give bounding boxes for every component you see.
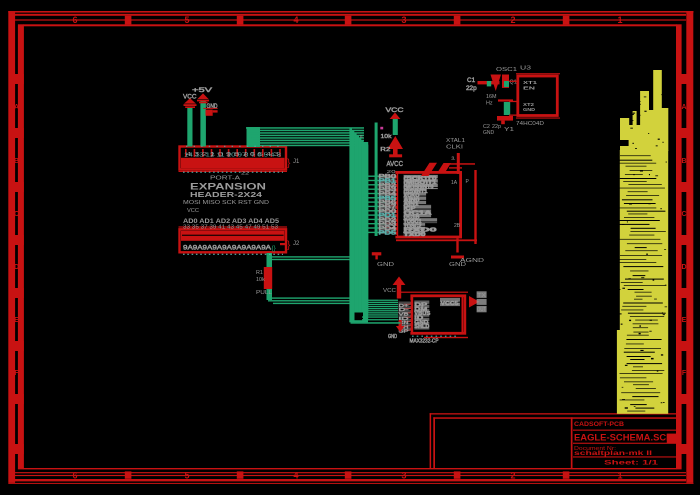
svg-text:33 35 37 39 41 43 45 47 49 51: 33 35 37 39 41 43 45 47 49 51 53	[183, 225, 278, 231]
svg-text:D: D	[14, 264, 19, 271]
svg-text:10k: 10k	[381, 134, 392, 140]
svg-text:6: 6	[72, 15, 77, 25]
svg-text:VCC: VCC	[383, 288, 396, 294]
svg-text:GND: GND	[523, 107, 536, 113]
svg-text:PULL: PULL	[256, 290, 273, 296]
svg-text:OSC1: OSC1	[496, 67, 517, 73]
svg-text:R2: R2	[380, 147, 390, 153]
svg-text:GND: GND	[483, 130, 495, 136]
svg-text:B: B	[681, 158, 686, 165]
svg-text:HEADER-2X24: HEADER-2X24	[190, 192, 262, 199]
svg-text:MOSI MISO SCK RST GND: MOSI MISO SCK RST GND	[183, 200, 269, 206]
svg-text:F: F	[14, 370, 19, 377]
svg-text:+5V: +5V	[192, 87, 213, 94]
svg-text:10k: 10k	[256, 277, 265, 283]
svg-text:74HC04D: 74HC04D	[516, 121, 544, 127]
svg-text:GND: GND	[388, 334, 397, 340]
svg-text:3: 3	[401, 15, 406, 25]
svg-text:A: A	[681, 104, 686, 111]
svg-text:EXPANSION: EXPANSION	[190, 182, 266, 193]
svg-text:22p: 22p	[466, 85, 477, 92]
svg-text:OUT: OUT	[477, 307, 487, 313]
svg-text:J1: J1	[293, 159, 300, 165]
svg-text:XTAL1: XTAL1	[446, 138, 465, 144]
svg-text:U3: U3	[520, 66, 531, 72]
svg-text:VCC: VCC	[183, 93, 197, 100]
svg-text:J2: J2	[293, 241, 300, 247]
svg-text:CADSOFT-PCB: CADSOFT-PCB	[574, 421, 625, 428]
svg-text:GND: GND	[207, 103, 218, 110]
svg-text:2: 2	[510, 15, 515, 25]
svg-text:Sheet: 1/1: Sheet: 1/1	[604, 459, 659, 466]
svg-text:4: 4	[293, 15, 298, 25]
svg-text:Y1: Y1	[504, 127, 514, 133]
svg-text:PD5: PD5	[379, 230, 397, 236]
svg-text:A: A	[14, 104, 19, 111]
svg-text:TXD0: TXD0	[404, 232, 426, 238]
svg-text:EN: EN	[523, 86, 536, 92]
svg-text:E: E	[14, 317, 19, 324]
svg-text:1: 1	[451, 156, 457, 162]
svg-text:5: 5	[184, 471, 189, 481]
svg-text:AGND: AGND	[460, 258, 485, 264]
svg-text:4: 4	[293, 471, 298, 481]
svg-text:5: 5	[184, 15, 189, 25]
svg-text:B: B	[14, 158, 19, 165]
svg-text:4 3 2 1 0 9 8 7 6 5 4 3: 4 3 2 1 0 9 8 7 6 5 4 3	[186, 152, 279, 158]
svg-text:XT1: XT1	[523, 80, 538, 86]
svg-text:F: F	[682, 370, 687, 377]
svg-text:8: 8	[360, 134, 363, 139]
svg-text:VCC5: VCC5	[441, 301, 459, 307]
svg-text:1A: 1A	[451, 180, 458, 186]
svg-text:TX: TX	[477, 293, 487, 299]
svg-text:3: 3	[401, 471, 406, 481]
svg-text:C: C	[14, 211, 19, 218]
svg-text:E: E	[682, 317, 687, 324]
svg-text:SHLD: SHLD	[414, 324, 429, 330]
svg-text:schaltplan-mk II: schaltplan-mk II	[574, 450, 652, 457]
svg-text:1: 1	[617, 471, 622, 481]
svg-text:C: C	[681, 211, 686, 218]
svg-text:Hz: Hz	[486, 101, 493, 107]
svg-text:Q1: Q1	[510, 80, 517, 86]
svg-text:6: 6	[72, 471, 77, 481]
svg-text:MAX3232-CP: MAX3232-CP	[410, 338, 439, 344]
svg-text:22: 22	[241, 171, 250, 176]
svg-text:C1: C1	[467, 77, 476, 84]
svg-text:16M: 16M	[486, 94, 497, 100]
svg-text:VCC: VCC	[187, 208, 199, 214]
svg-text:GND: GND	[377, 262, 394, 268]
svg-text:D: D	[681, 264, 686, 271]
svg-text:2: 2	[510, 471, 515, 481]
svg-text:AVCC: AVCC	[387, 161, 404, 168]
svg-text:R1: R1	[256, 270, 263, 276]
svg-text:9A9A9A9A9A9A9A9A9A: 9A9A9A9A9A9A9A9A9A	[183, 246, 271, 252]
svg-text:2B: 2B	[454, 223, 461, 229]
svg-text:EAGLE-SCHEMA.SCH: EAGLE-SCHEMA.SCH	[574, 433, 673, 443]
svg-text:CLKI: CLKI	[446, 145, 463, 151]
svg-text:1: 1	[617, 15, 622, 25]
